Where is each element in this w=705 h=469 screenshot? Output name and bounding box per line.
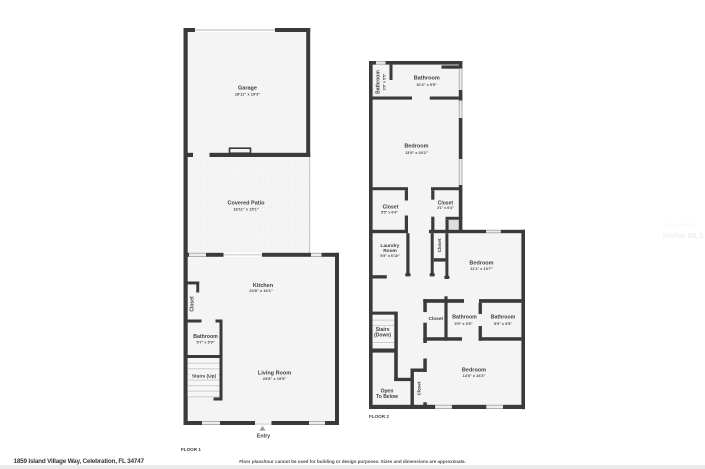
svg-text:Stellar MLS: Stellar MLS: [666, 223, 695, 229]
svg-text:Bathroom: Bathroom: [491, 314, 516, 320]
svg-text:11'1" x 10'7": 11'1" x 10'7": [470, 266, 493, 271]
svg-text:Stairs (Up): Stairs (Up): [192, 373, 217, 379]
svg-text:23'8" x 19'5": 23'8" x 19'5": [263, 376, 287, 381]
svg-text:Stellar MLS: Stellar MLS: [662, 231, 703, 240]
svg-text:Bedroom: Bedroom: [404, 144, 428, 150]
svg-text:Bathroom: Bathroom: [193, 334, 218, 340]
svg-text:Floor plans/tour cannot be use: Floor plans/tour cannot be used for buil…: [239, 459, 466, 464]
svg-text:FLOOR 1: FLOOR 1: [181, 447, 201, 452]
svg-text:Closet: Closet: [416, 381, 421, 395]
svg-text:18'11" x 15'1": 18'11" x 15'1": [233, 206, 259, 211]
svg-text:5'9" x 5'5": 5'9" x 5'5": [494, 322, 512, 326]
svg-text:23'8" x 16'1": 23'8" x 16'1": [249, 288, 273, 293]
svg-text:Garage: Garage: [238, 85, 257, 91]
svg-text:Closet: Closet: [437, 238, 442, 252]
svg-text:5'5" x 6'4": 5'5" x 6'4": [381, 210, 398, 214]
svg-text:Closet: Closet: [428, 316, 443, 322]
svg-text:Closet: Closet: [190, 296, 196, 312]
svg-text:18'11" x 19'3": 18'11" x 19'3": [235, 91, 261, 96]
svg-text:9'9" x 5'5": 9'9" x 5'5": [454, 322, 472, 326]
svg-text:3'9" x 5'5": 3'9" x 5'5": [382, 73, 386, 90]
svg-text:To Below: To Below: [376, 394, 398, 400]
svg-text:(Down): (Down): [374, 332, 391, 338]
svg-text:Bathroom: Bathroom: [376, 70, 382, 94]
svg-text:5'7" x 5'9": 5'7" x 5'9": [196, 340, 214, 344]
svg-text:5'5" x 6'10": 5'5" x 6'10": [380, 254, 400, 258]
svg-text:1859 Island Village Way, Celeb: 1859 Island Village Way, Celebration, FL…: [14, 458, 145, 465]
svg-text:10'4" x 5'5": 10'4" x 5'5": [416, 82, 437, 87]
svg-text:Entry: Entry: [257, 434, 270, 440]
svg-text:Room: Room: [383, 248, 397, 254]
svg-text:Bathroom: Bathroom: [452, 314, 477, 320]
svg-text:4'1" x 6'4": 4'1" x 6'4": [437, 206, 454, 210]
svg-text:Bathroom: Bathroom: [414, 75, 440, 81]
svg-text:FLOOR 2: FLOOR 2: [369, 414, 389, 419]
svg-text:14'6" x 16'3": 14'6" x 16'3": [463, 373, 486, 378]
svg-text:13'9" x 20'2": 13'9" x 20'2": [405, 150, 428, 155]
